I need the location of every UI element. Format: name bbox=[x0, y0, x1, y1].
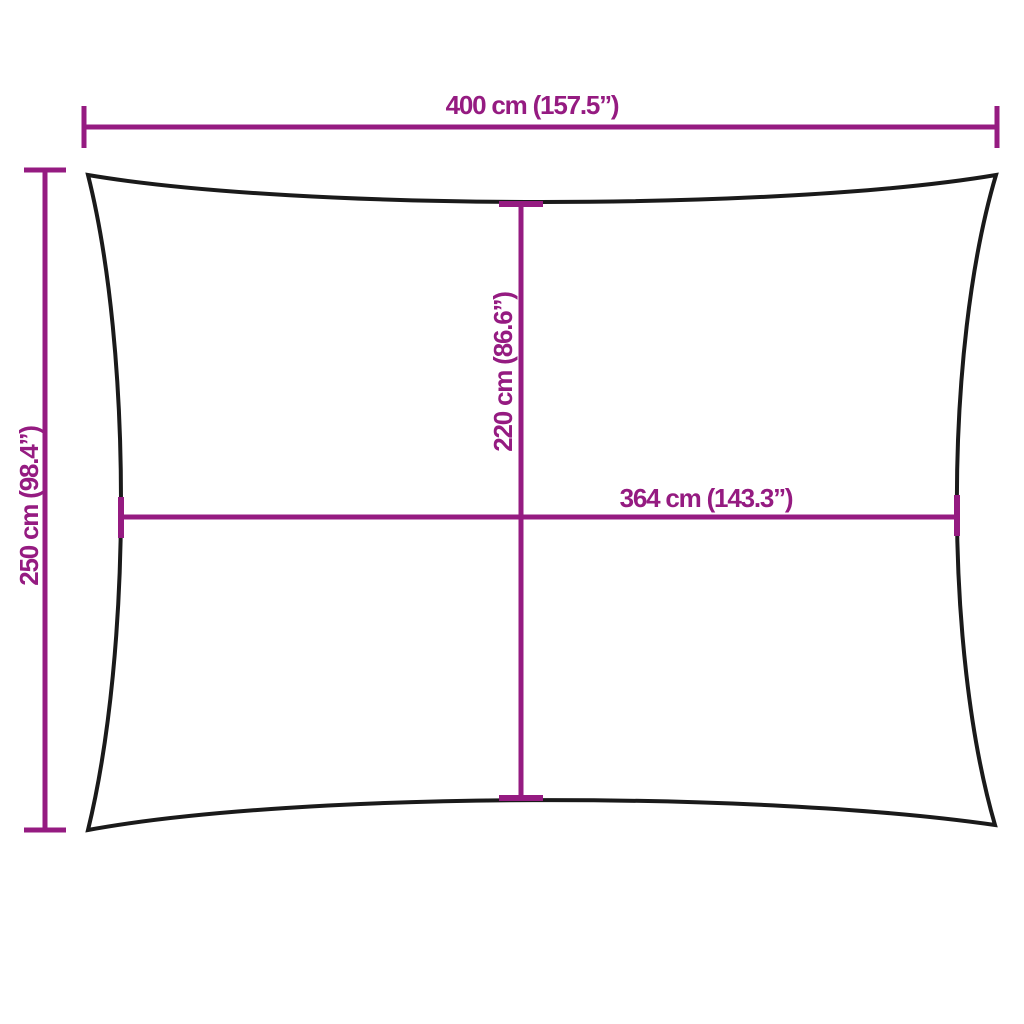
outer-height-label: 250 cm (98.4”) bbox=[14, 426, 44, 586]
outer-width-dimension: 400 cm (157.5”) bbox=[84, 90, 997, 148]
shade-sail-outline bbox=[88, 175, 996, 830]
dimension-diagram: 400 cm (157.5”) 250 cm (98.4”) 220 cm (8… bbox=[0, 0, 1024, 1024]
inner-width-label: 364 cm (143.3”) bbox=[620, 483, 793, 513]
outer-height-dimension: 250 cm (98.4”) bbox=[14, 170, 66, 830]
dimension-diagram-svg: 400 cm (157.5”) 250 cm (98.4”) 220 cm (8… bbox=[0, 0, 1024, 1024]
outer-width-label: 400 cm (157.5”) bbox=[446, 90, 619, 120]
inner-height-label: 220 cm (86.6”) bbox=[488, 292, 518, 452]
inner-width-dimension: 364 cm (143.3”) bbox=[121, 483, 957, 538]
inner-height-dimension: 220 cm (86.6”) bbox=[488, 204, 543, 798]
